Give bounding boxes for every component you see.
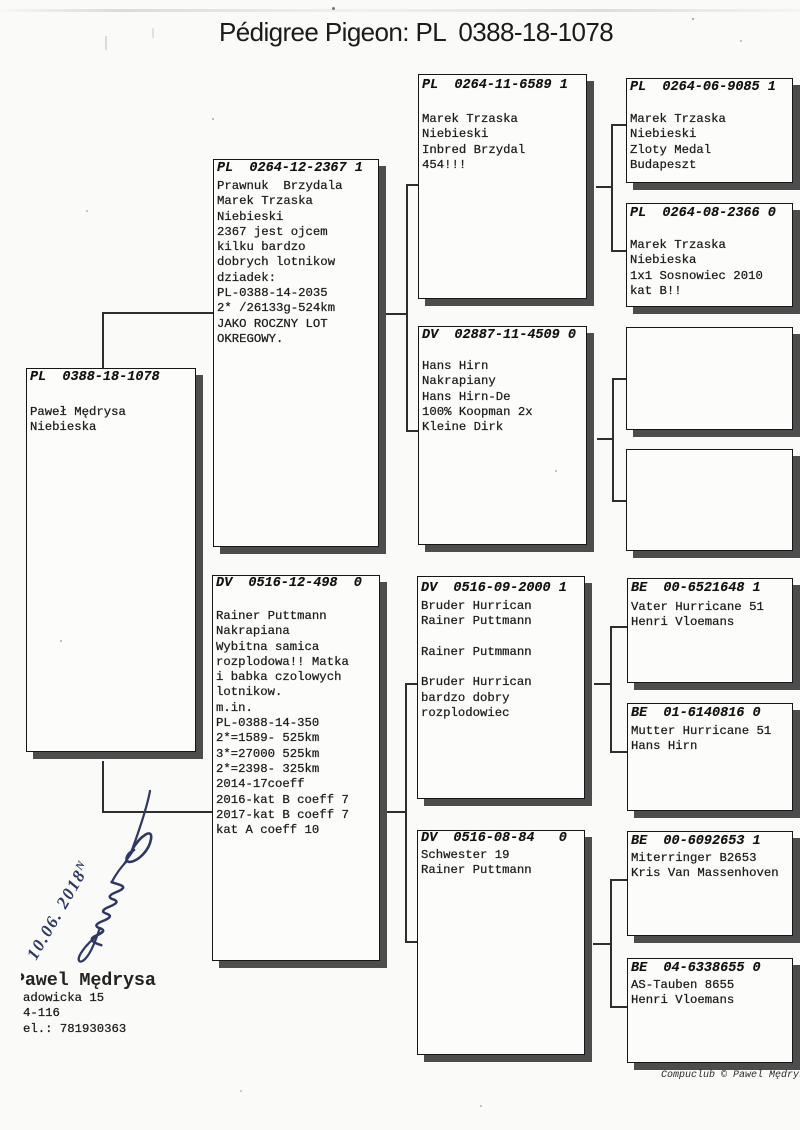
svg-text:10.06. 2018N: 10.06. 2018N (22, 857, 94, 963)
